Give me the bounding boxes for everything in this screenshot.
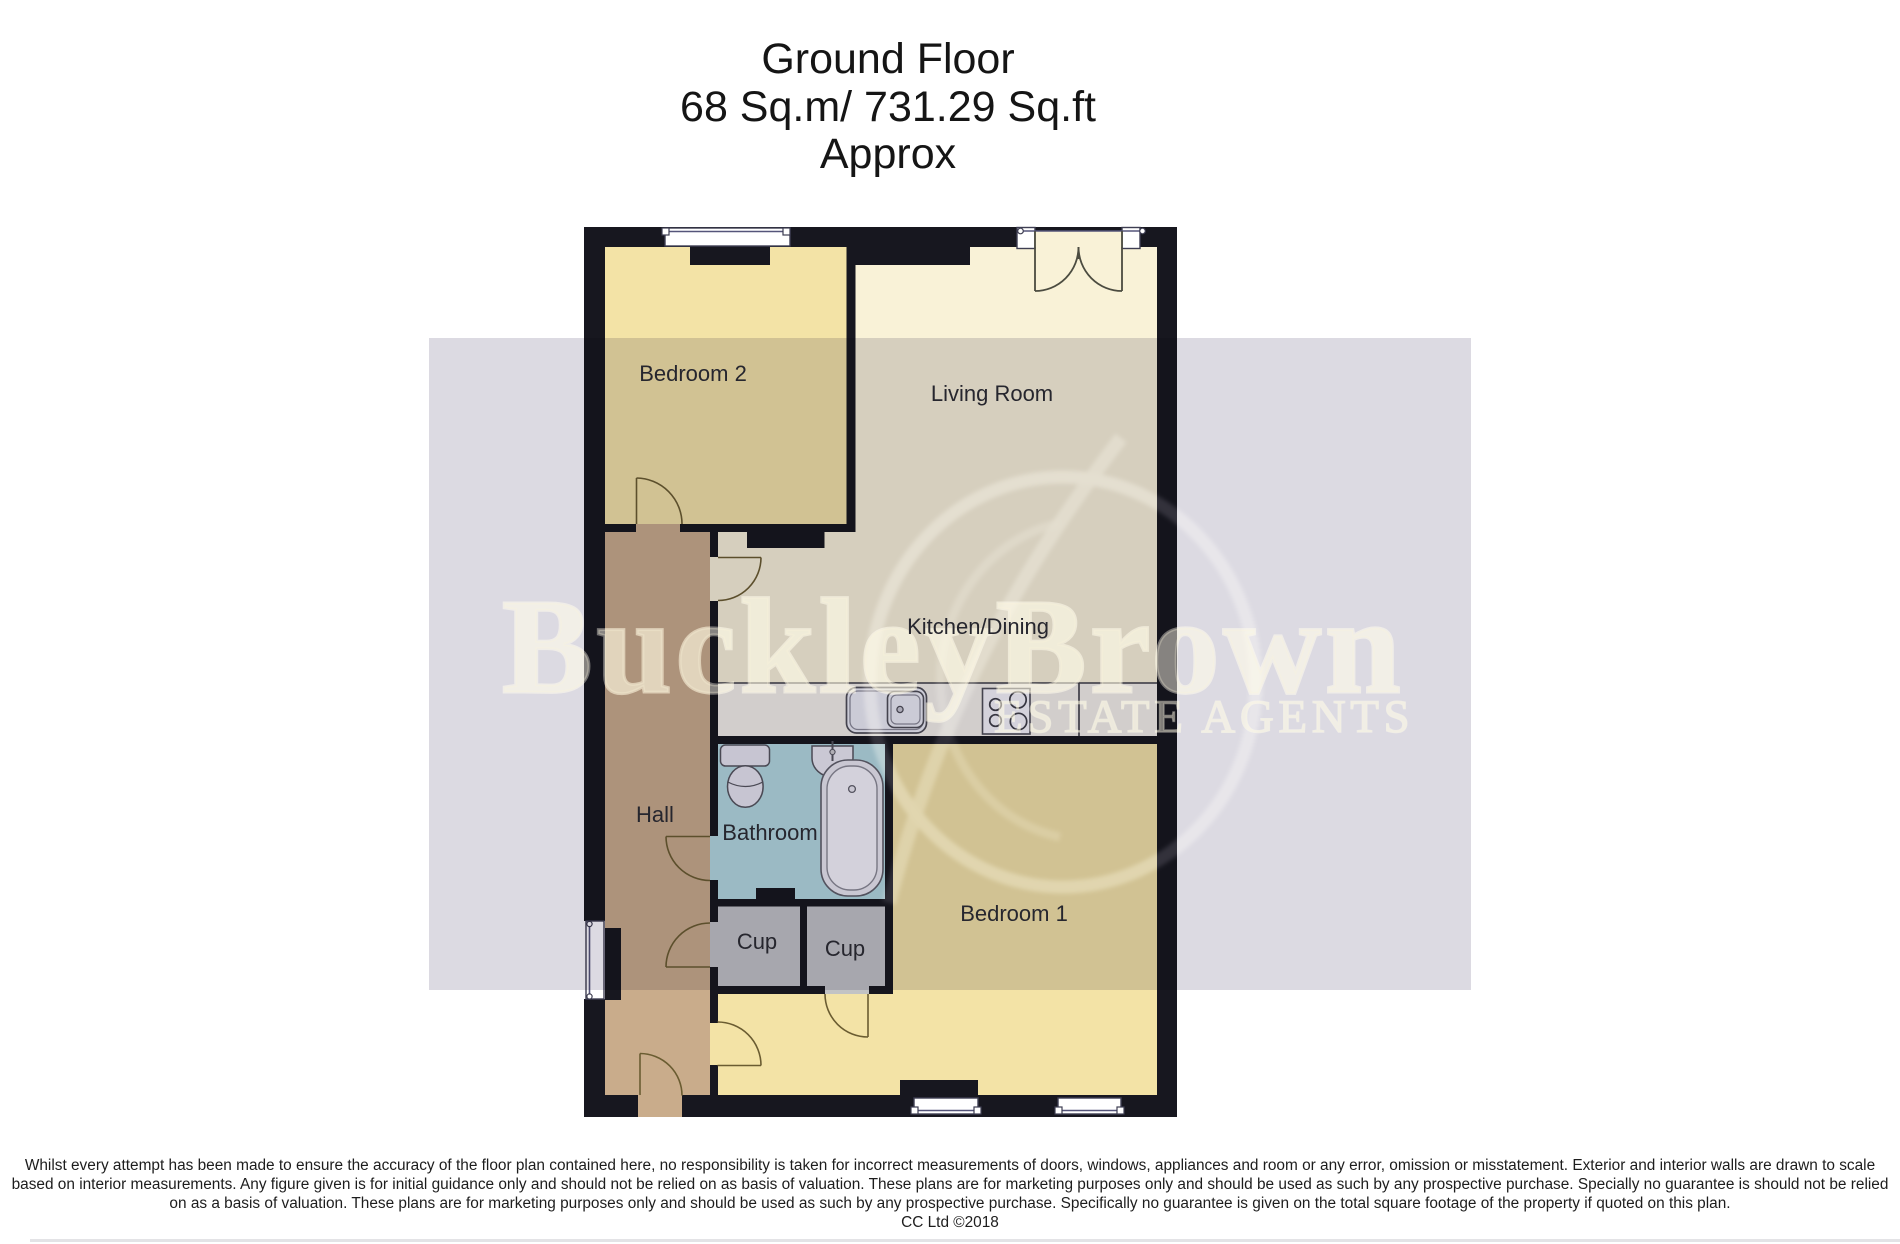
svg-text:Bathroom: Bathroom [722, 820, 817, 845]
svg-text:Bedroom 1: Bedroom 1 [960, 901, 1068, 926]
svg-text:Cup: Cup [737, 929, 777, 954]
svg-text:Living Room: Living Room [931, 381, 1053, 406]
svg-text:Kitchen/Dining: Kitchen/Dining [907, 614, 1049, 639]
svg-text:Hall: Hall [636, 802, 674, 827]
svg-text:Cup: Cup [825, 936, 865, 961]
svg-text:Bedroom 2: Bedroom 2 [639, 361, 747, 386]
